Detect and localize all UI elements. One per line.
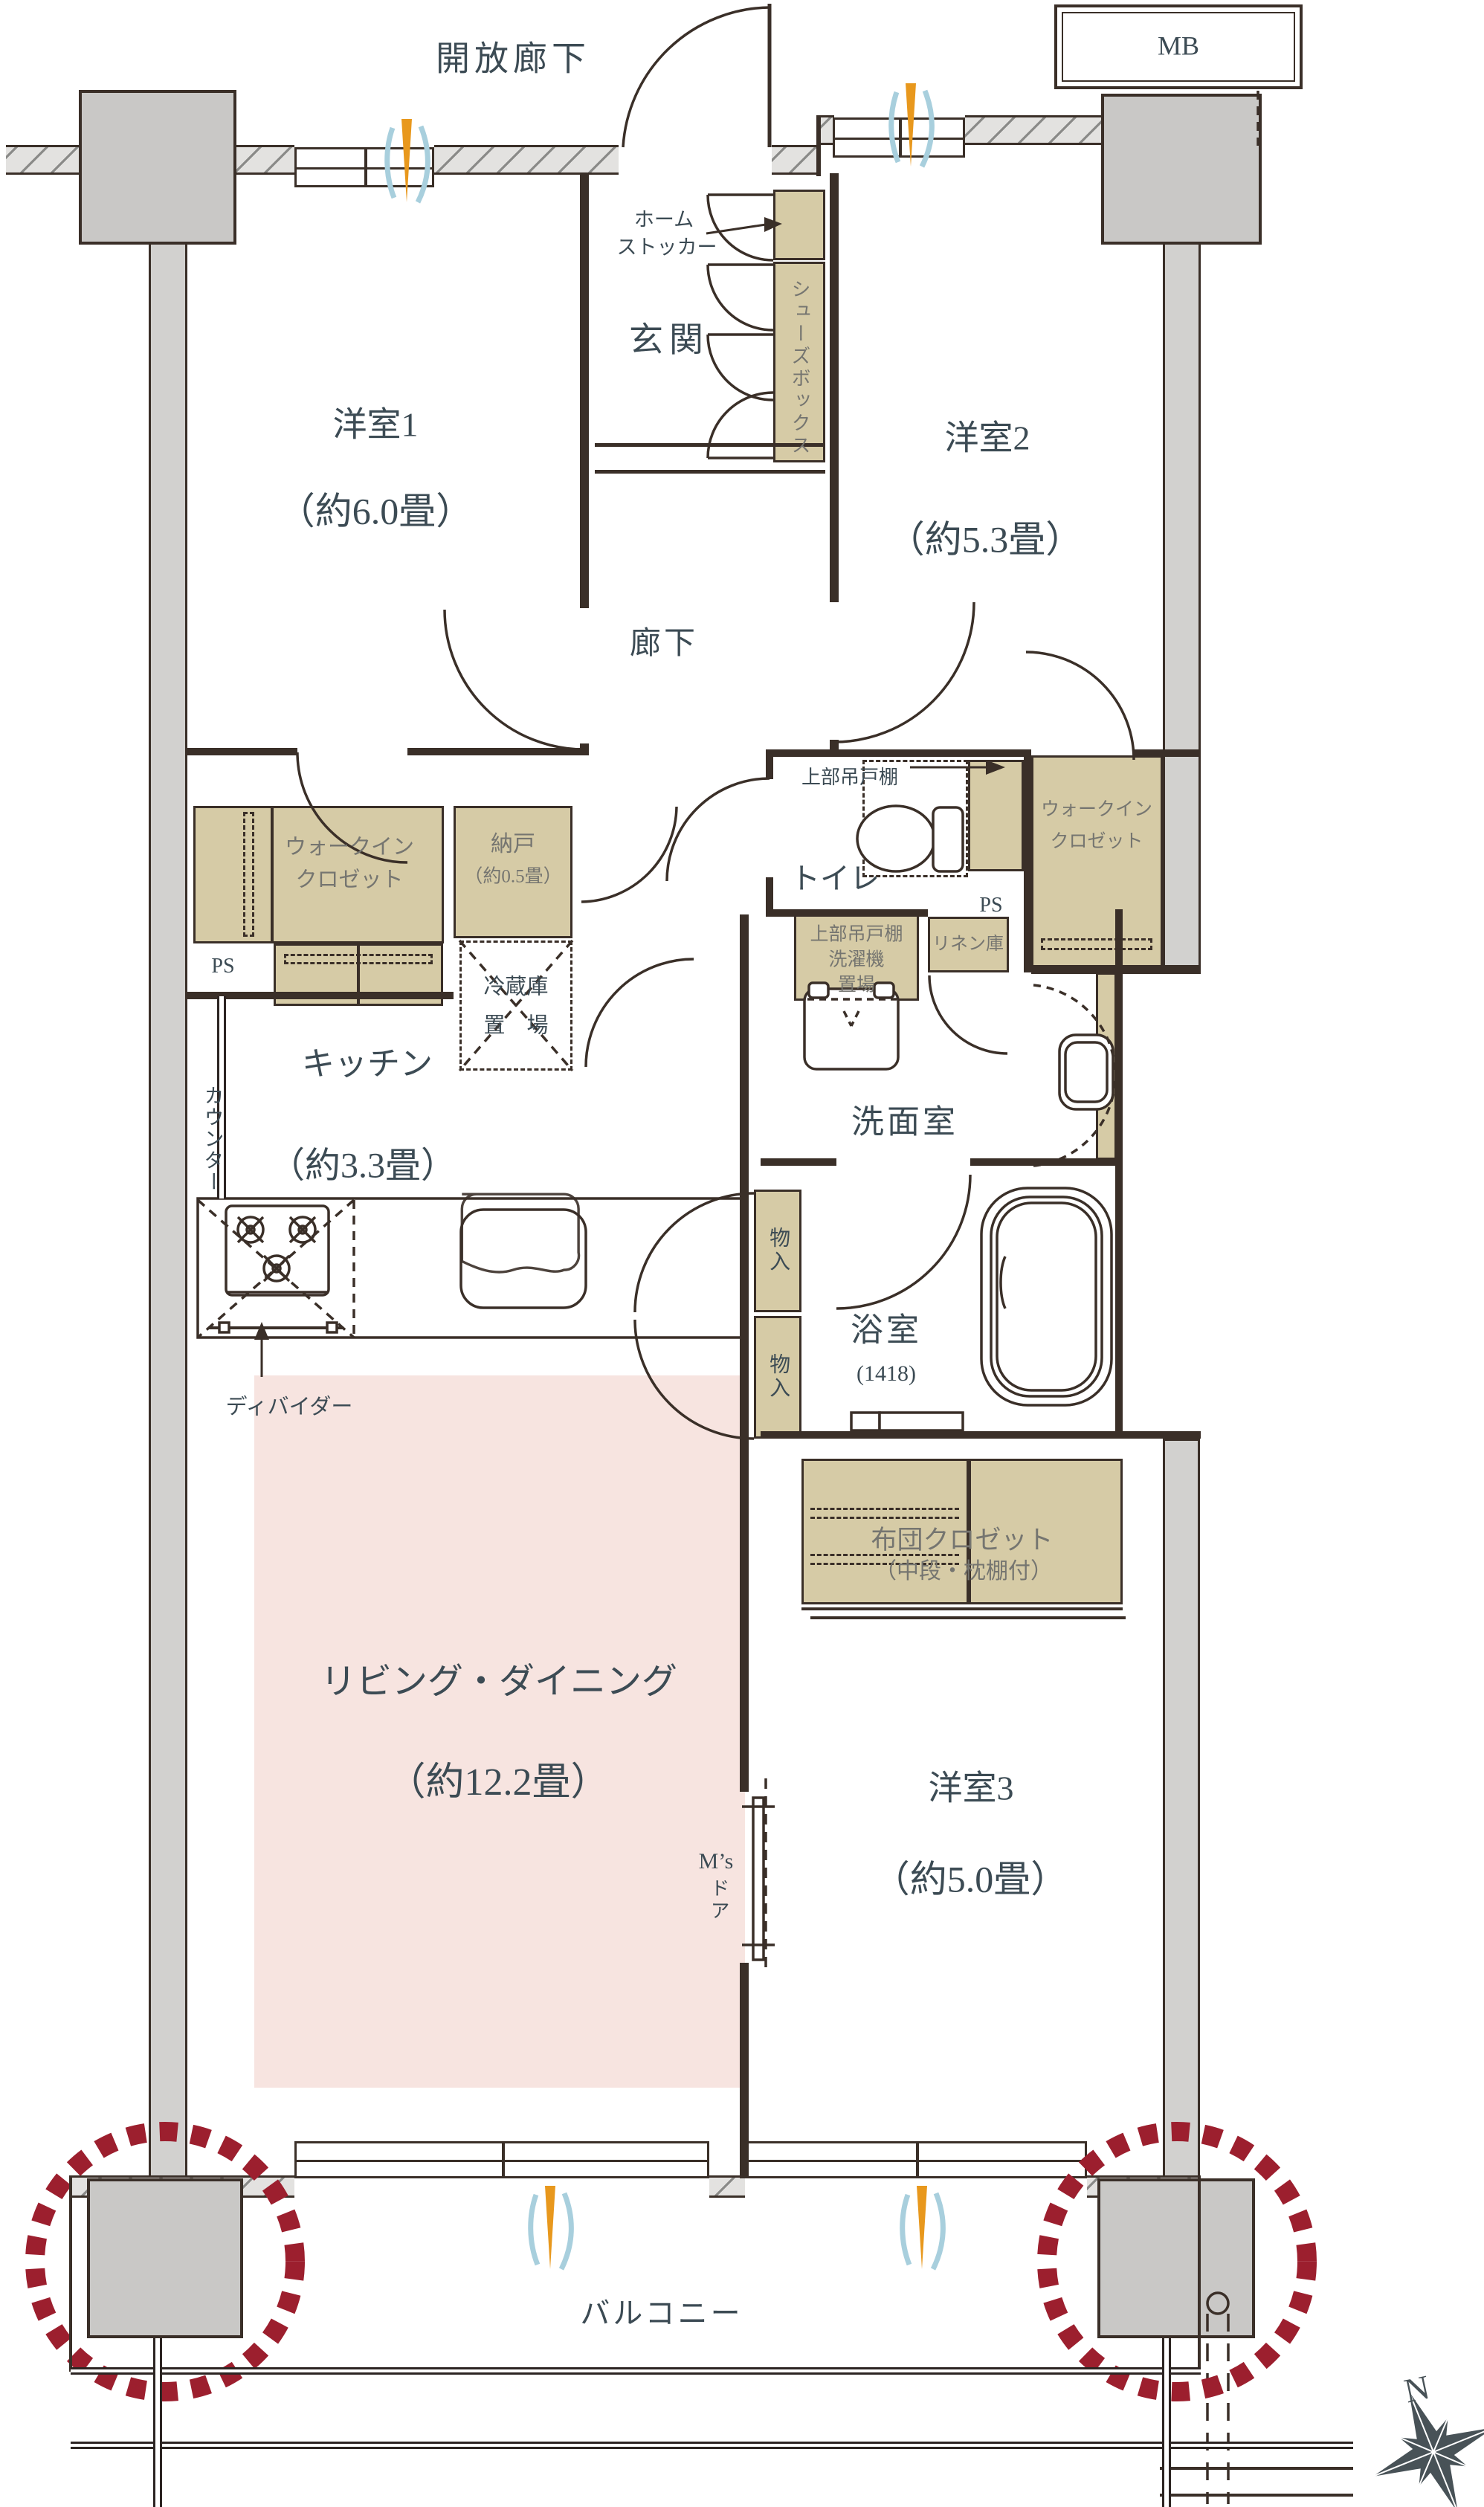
bedroom2-label: 洋室2	[945, 419, 1030, 459]
wall	[766, 749, 1024, 757]
door-arc-mono	[635, 1193, 754, 1312]
pillar-highlight-circle	[35, 2132, 1307, 2392]
balcony-edge	[1160, 2494, 1353, 2497]
wall	[407, 748, 589, 755]
wall	[761, 1431, 1201, 1439]
kitchen-size: （約3.3畳）	[269, 1145, 457, 1186]
wall	[761, 1158, 836, 1166]
cabinet-door-arc	[708, 335, 773, 400]
bedroom1-size: （約6.0畳）	[278, 490, 474, 533]
bath-label: 浴室	[851, 1312, 922, 1350]
wic-left-label: クロゼット	[295, 868, 403, 892]
door-arc-bedroom1	[445, 610, 584, 749]
door-arc-bedroom2	[834, 602, 974, 742]
bath-counter	[880, 1413, 963, 1430]
wall	[766, 909, 928, 917]
bath-size: (1418)	[856, 1361, 916, 1387]
wic-right-label: ウォークイン	[1041, 800, 1152, 822]
sink-inner	[462, 1194, 578, 1272]
ps-left-label: PS	[211, 955, 234, 978]
futon-closet-track	[810, 1616, 1126, 1619]
door-arc-washroom	[929, 975, 1007, 1054]
shoe-box-label: シューズボックス	[788, 279, 810, 457]
wic-left-label: ウォークイン	[285, 835, 414, 859]
home-stocker-label: ホーム	[634, 208, 694, 231]
cabinet-door-arc	[708, 265, 773, 330]
wic-right-label: クロゼット	[1050, 832, 1143, 854]
pillar-base-line	[1162, 2338, 1171, 2507]
fridge-label: 置 場	[483, 1013, 548, 1038]
balcony-edge	[1160, 2467, 1353, 2470]
sink	[461, 1210, 586, 1308]
wall	[1115, 909, 1123, 1439]
door-arc-bath	[836, 1175, 970, 1309]
nando-label: 納戸	[491, 832, 535, 858]
futon-closet-label: （中段・枕棚付）	[874, 1559, 1053, 1585]
washing-machine	[804, 989, 898, 1069]
washer-label: 洗濯機	[828, 950, 884, 972]
pillar-base-line	[153, 2338, 162, 2507]
balcony-side	[1198, 2175, 1201, 2372]
washer-label: 上部吊戸棚	[810, 925, 903, 946]
door-arc-nando	[581, 807, 677, 902]
hall-label: 廊下	[630, 626, 698, 662]
mono2-label: 物入	[766, 1353, 790, 1401]
divider-label: ディバイダー	[226, 1395, 353, 1419]
kitchen-label: キッチン	[302, 1046, 433, 1084]
futon-closet-track	[801, 1607, 1123, 1610]
linen-label: リネン庫	[932, 935, 1004, 955]
wall	[766, 749, 773, 779]
mb-label: MB	[1158, 30, 1199, 61]
futon-closet-label: 布団クロゼット	[871, 1526, 1053, 1555]
sliding-door	[753, 1798, 764, 1960]
door-arc-kitchen	[586, 959, 694, 1067]
balcony-edge	[71, 2367, 1201, 2375]
toilet-tank	[933, 807, 963, 871]
ps-right-label: PS	[979, 894, 1002, 917]
door-arc-toilet	[667, 778, 770, 881]
wall	[830, 173, 839, 602]
wall	[187, 992, 454, 999]
toilet-label: トイレ	[790, 862, 880, 896]
living-dining-size: （約12.2畳）	[387, 1761, 609, 1805]
toilet-upper-cabinet-label: 上部吊戸棚	[801, 767, 898, 789]
fridge-label: 冷蔵庫	[483, 975, 548, 999]
wall	[740, 1963, 749, 2178]
wall	[580, 173, 589, 608]
fridge-cross	[459, 940, 572, 1071]
washroom-label: 洗面室	[851, 1104, 958, 1142]
washer-label: 置場	[838, 975, 875, 997]
wall	[1134, 749, 1201, 757]
wall	[740, 914, 749, 1792]
wall	[970, 1158, 1123, 1166]
cabinet-door-arc	[708, 393, 773, 458]
bedroom3-label: 洋室3	[929, 1769, 1014, 1809]
ms-door-label: M’s	[699, 1849, 734, 1875]
open-corridor-label: 開放廊下	[436, 40, 590, 80]
balcony-side	[69, 2175, 72, 2372]
bath-counter	[851, 1413, 880, 1430]
home-stocker-label: ストッカー	[617, 236, 717, 259]
bedroom2-size: （約5.3畳）	[888, 518, 1083, 561]
floor-plan: 開放廊下 MB ホーム ストッカー 玄関 シューズボックス 洋室1 （約6.0畳…	[0, 0, 1484, 2507]
living-dining-label: リビング・ダイニング	[320, 1661, 677, 1702]
entrance-label: 玄関	[629, 321, 709, 361]
drain-cap	[1207, 2293, 1228, 2314]
nando-size: （約0.5畳）	[464, 867, 561, 888]
arrow-icon	[262, 225, 987, 1377]
wall	[1024, 749, 1031, 972]
entrance-door-arc	[623, 7, 770, 147]
door-arc-wic-right	[1026, 652, 1134, 760]
bedroom3-size: （約5.0畳）	[873, 1858, 1068, 1901]
genkan-step	[595, 470, 825, 474]
wall	[187, 748, 297, 755]
balcony-label: バルコニー	[580, 2297, 743, 2331]
ms-door-label: ドア	[707, 1878, 729, 1923]
mono1-label: 物入	[766, 1227, 790, 1274]
balcony-edge	[71, 2442, 1353, 2449]
bedroom1-label: 洋室1	[333, 406, 419, 445]
counter-label: カウンター	[200, 1085, 223, 1193]
vent-icon	[387, 83, 943, 2269]
